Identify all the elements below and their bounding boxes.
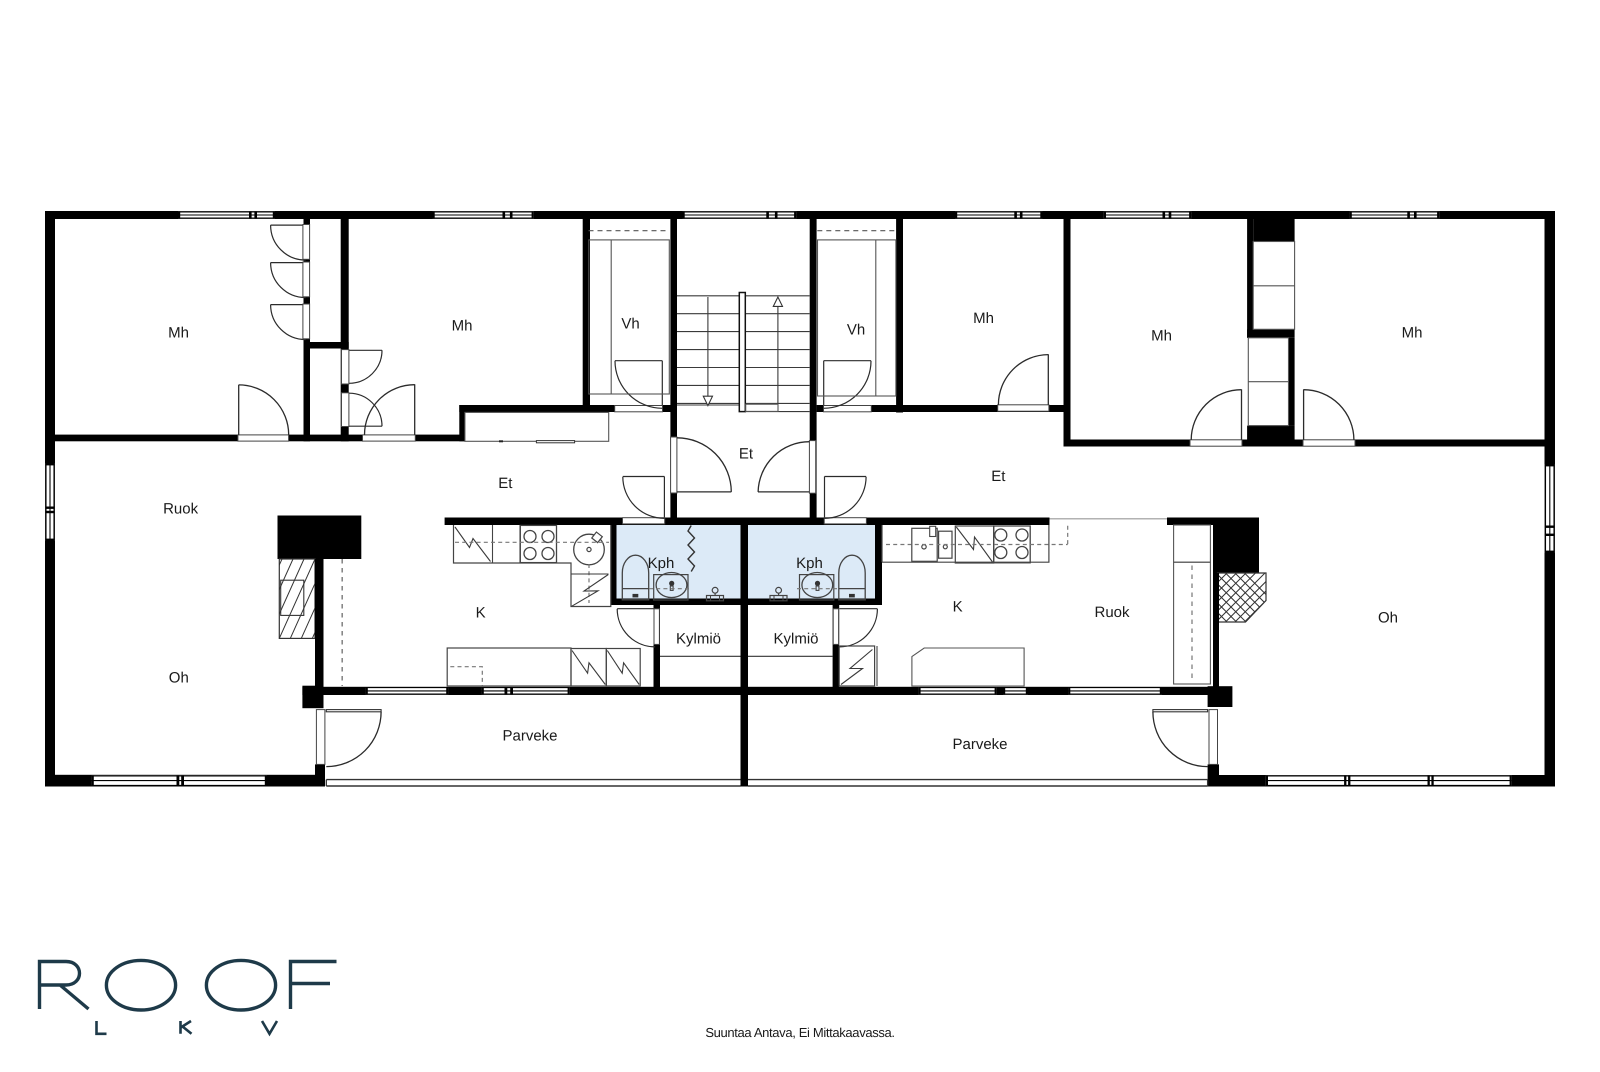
- svg-text:Kylmiö: Kylmiö: [676, 631, 721, 648]
- svg-text:Suuntaa Antava, Ei Mittakaavas: Suuntaa Antava, Ei Mittakaavassa.: [705, 1025, 894, 1040]
- svg-text:Vh: Vh: [847, 322, 865, 339]
- svg-text:Et: Et: [739, 446, 754, 463]
- svg-text:Kph: Kph: [796, 555, 823, 572]
- svg-text:Oh: Oh: [1378, 610, 1398, 627]
- svg-text:Mh: Mh: [1151, 328, 1172, 345]
- svg-text:Parveke: Parveke: [502, 728, 557, 745]
- svg-text:Vh: Vh: [621, 316, 639, 333]
- svg-text:Et: Et: [991, 468, 1006, 485]
- svg-text:K: K: [953, 599, 963, 616]
- svg-text:Kylmiö: Kylmiö: [773, 631, 818, 648]
- svg-text:Mh: Mh: [1402, 325, 1423, 342]
- svg-text:Kph: Kph: [648, 555, 675, 572]
- svg-text:Mh: Mh: [452, 318, 473, 335]
- svg-text:Mh: Mh: [168, 325, 189, 342]
- svg-text:Oh: Oh: [169, 670, 189, 687]
- svg-text:K: K: [476, 605, 486, 622]
- svg-text:Mh: Mh: [973, 310, 994, 327]
- svg-text:Parveke: Parveke: [952, 736, 1007, 753]
- svg-text:Ruok: Ruok: [1094, 604, 1130, 621]
- svg-text:Et: Et: [498, 475, 513, 492]
- svg-text:Ruok: Ruok: [163, 501, 199, 518]
